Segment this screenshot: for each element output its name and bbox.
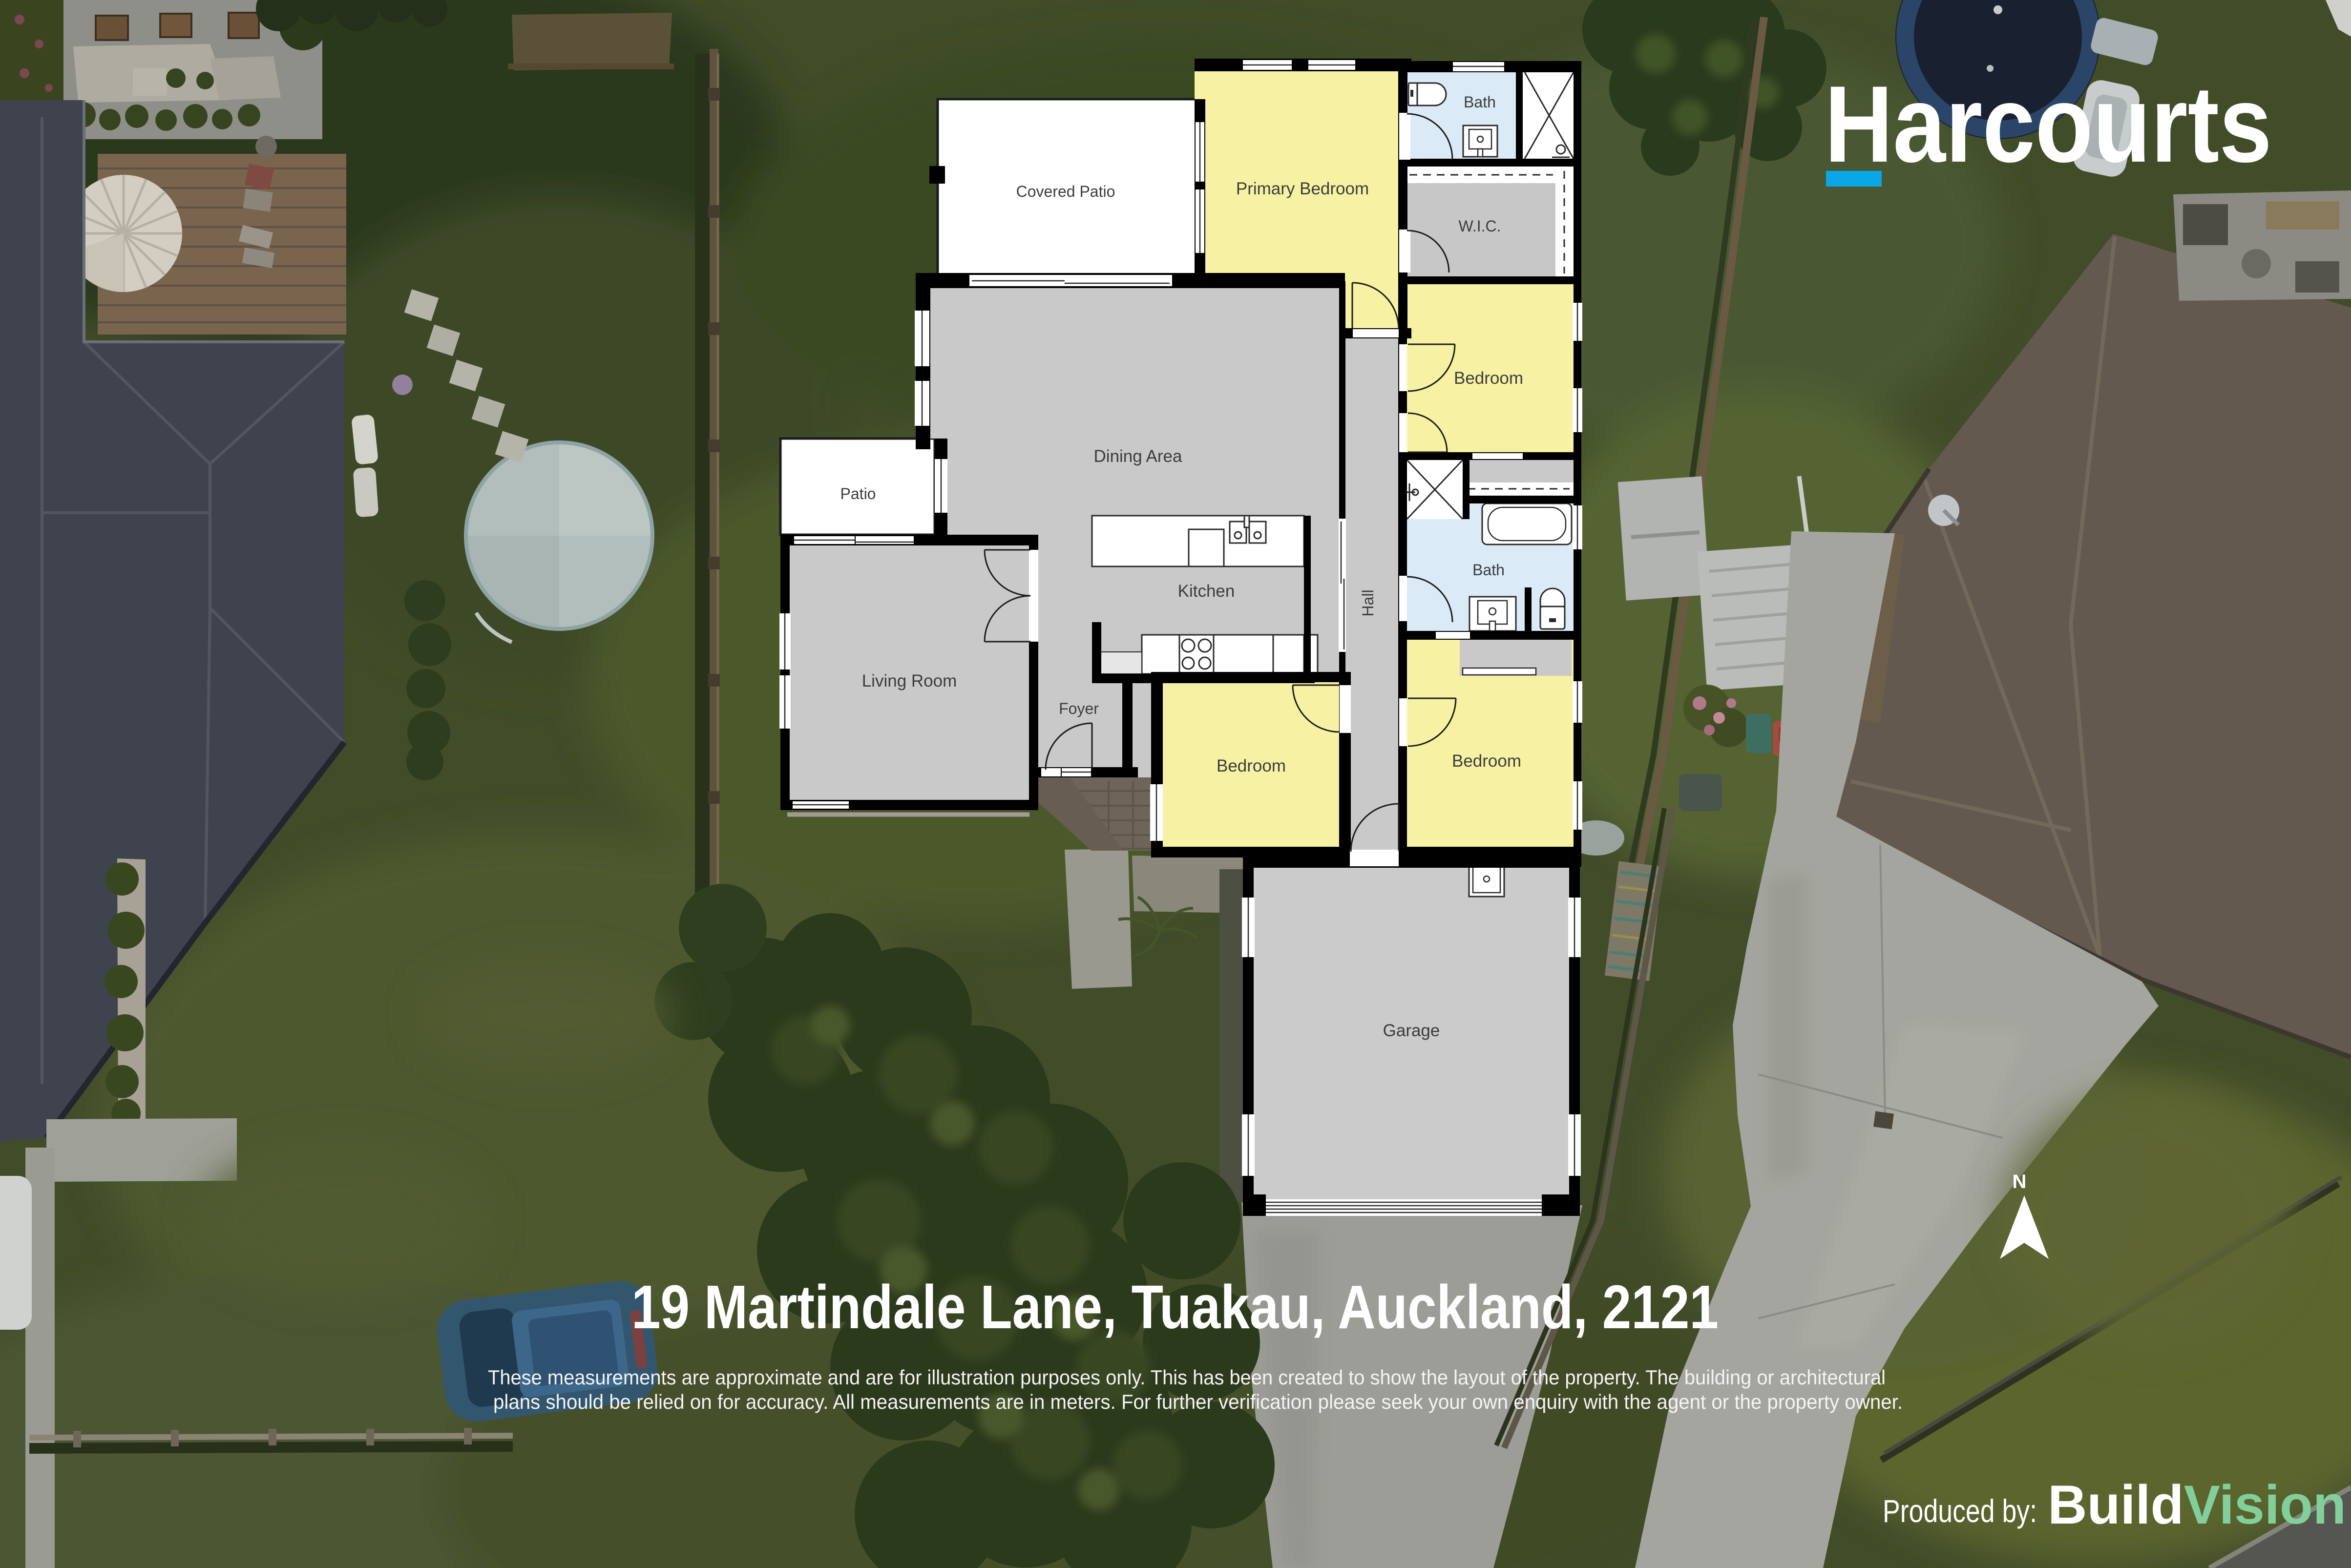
svg-text:Foyer: Foyer xyxy=(1059,700,1099,717)
svg-text:Bath: Bath xyxy=(1464,93,1496,111)
svg-text:BuildVision: BuildVision xyxy=(2048,1474,2346,1535)
svg-text:Covered Patio: Covered Patio xyxy=(1016,183,1115,200)
svg-text:N: N xyxy=(2013,1171,2027,1192)
svg-text:Dining Area: Dining Area xyxy=(1094,447,1182,466)
svg-text:Harcourts: Harcourts xyxy=(1825,63,2272,185)
svg-text:Produced by:: Produced by: xyxy=(1883,1493,2037,1529)
svg-text:Garage: Garage xyxy=(1383,1021,1440,1040)
svg-text:Kitchen: Kitchen xyxy=(1178,582,1235,601)
svg-text:Living Room: Living Room xyxy=(862,671,957,690)
svg-text:Bedroom: Bedroom xyxy=(1217,756,1286,775)
svg-text:These measurements are approxi: These measurements are approximate and a… xyxy=(488,1366,1886,1389)
svg-text:Hall: Hall xyxy=(1359,589,1377,616)
svg-text:Bedroom: Bedroom xyxy=(1454,369,1523,388)
svg-text:Patio: Patio xyxy=(840,485,876,502)
svg-text:Bath: Bath xyxy=(1472,561,1505,579)
svg-text:Bedroom: Bedroom xyxy=(1452,752,1521,771)
svg-text:plans should be relied on for: plans should be relied on for accuracy. … xyxy=(493,1390,1903,1413)
svg-text:19 Martindale Lane, Tuakau, Au: 19 Martindale Lane, Tuakau, Auckland, 21… xyxy=(631,1273,1719,1341)
svg-text:Primary Bedroom: Primary Bedroom xyxy=(1236,179,1369,198)
svg-text:W.I.C.: W.I.C. xyxy=(1458,217,1501,235)
